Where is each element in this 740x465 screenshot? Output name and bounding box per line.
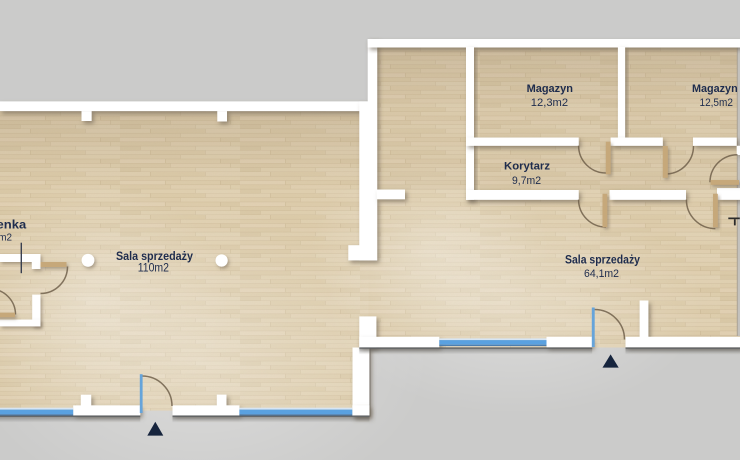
svg-text:4,9m2: 4,9m2: [0, 232, 12, 244]
svg-text:110m2: 110m2: [138, 263, 169, 275]
svg-text:Magazyn: Magazyn: [692, 83, 738, 95]
svg-text:Łazienka: Łazienka: [0, 220, 27, 232]
svg-text:64,1m2: 64,1m2: [584, 268, 619, 280]
svg-text:Sala sprzedaży: Sala sprzedaży: [565, 254, 641, 266]
svg-text:Korytarz: Korytarz: [504, 160, 551, 172]
svg-text:Sala sprzedaży: Sala sprzedaży: [116, 251, 194, 263]
svg-text:12,5m2: 12,5m2: [700, 97, 733, 109]
svg-text:Magazyn: Magazyn: [527, 83, 574, 95]
svg-text:9,7m2: 9,7m2: [512, 175, 541, 187]
svg-text:12,3m2: 12,3m2: [531, 97, 568, 109]
